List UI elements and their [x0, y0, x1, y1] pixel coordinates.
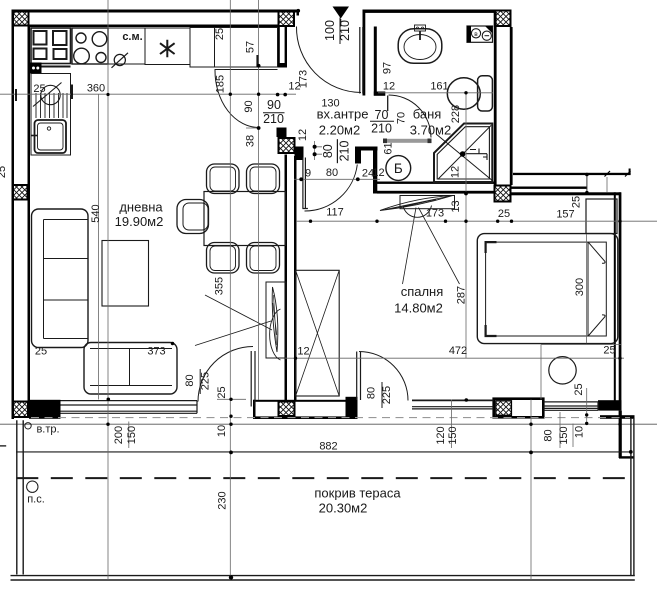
svg-text:882: 882: [319, 441, 337, 453]
svg-text:225: 225: [381, 386, 393, 404]
svg-text:80: 80: [543, 429, 555, 441]
svg-text:80: 80: [366, 387, 378, 399]
svg-text:360: 360: [87, 83, 105, 95]
svg-text:300: 300: [574, 278, 586, 296]
svg-text:150: 150: [126, 426, 138, 444]
svg-text:161: 161: [430, 81, 448, 93]
svg-text:25: 25: [0, 166, 8, 178]
svg-text:25: 25: [498, 208, 510, 220]
svg-text:200: 200: [113, 426, 125, 444]
svg-text:70: 70: [375, 108, 389, 122]
svg-text:2.20м2: 2.20м2: [319, 123, 360, 138]
svg-text:покрив тераса: покрив тераса: [314, 486, 401, 501]
svg-text:210: 210: [338, 141, 352, 162]
svg-text:в.тр.: в.тр.: [36, 424, 59, 436]
svg-text:Б: Б: [394, 161, 403, 176]
svg-text:25: 25: [214, 28, 226, 40]
svg-text:спалня: спалня: [401, 284, 444, 299]
svg-text:173: 173: [298, 70, 310, 88]
svg-text:210: 210: [338, 20, 352, 41]
svg-text:97: 97: [382, 62, 394, 74]
svg-text:540: 540: [90, 204, 102, 222]
svg-text:150: 150: [558, 426, 570, 444]
svg-text:12: 12: [297, 346, 309, 358]
svg-text:120: 120: [435, 426, 447, 444]
svg-text:25: 25: [216, 386, 228, 398]
svg-text:100: 100: [323, 20, 337, 41]
svg-text:19.90м2: 19.90м2: [115, 214, 164, 229]
svg-text:14.80м2: 14.80м2: [394, 301, 443, 316]
svg-text:185: 185: [215, 75, 227, 93]
svg-text:80: 80: [326, 167, 338, 179]
svg-text:с.м.: с.м.: [122, 31, 142, 43]
svg-text:баня: баня: [413, 107, 442, 122]
svg-text:20.30м2: 20.30м2: [319, 501, 368, 516]
svg-text:25: 25: [33, 83, 45, 95]
svg-text:228: 228: [450, 105, 462, 123]
svg-text:3.70м2: 3.70м2: [410, 123, 451, 138]
svg-text:225: 225: [200, 372, 212, 390]
svg-text:57: 57: [245, 41, 257, 53]
svg-text:п.с.: п.с.: [27, 494, 45, 506]
svg-text:38: 38: [245, 135, 257, 147]
svg-text:210: 210: [263, 112, 284, 126]
svg-text:10: 10: [574, 426, 586, 438]
svg-text:вх.антре: вх.антре: [317, 107, 369, 122]
svg-text:дневна: дневна: [119, 200, 163, 215]
svg-text:230: 230: [217, 491, 229, 509]
svg-text:90: 90: [267, 98, 281, 112]
svg-text:25: 25: [573, 383, 585, 395]
svg-text:10: 10: [216, 425, 228, 437]
svg-text:150: 150: [447, 426, 459, 444]
svg-text:173: 173: [426, 208, 444, 220]
svg-text:12: 12: [383, 81, 395, 93]
svg-text:157: 157: [556, 209, 574, 221]
svg-text:80: 80: [184, 374, 196, 386]
svg-text:472: 472: [449, 345, 467, 357]
svg-text:12: 12: [372, 167, 384, 179]
svg-text:117: 117: [326, 207, 344, 219]
svg-text:12: 12: [450, 166, 462, 178]
svg-text:25: 25: [603, 345, 615, 357]
svg-text:в: в: [474, 31, 478, 38]
svg-text:9: 9: [305, 168, 311, 180]
svg-text:355: 355: [214, 277, 226, 295]
svg-text:25: 25: [35, 346, 47, 358]
svg-text:80: 80: [321, 144, 335, 158]
svg-text:70: 70: [396, 112, 408, 124]
svg-text:373: 373: [147, 346, 165, 358]
svg-text:90: 90: [243, 100, 255, 112]
svg-text:12: 12: [297, 129, 309, 141]
svg-text:61: 61: [383, 142, 395, 154]
svg-text:13: 13: [450, 200, 462, 212]
svg-text:210: 210: [371, 122, 392, 136]
svg-text:25: 25: [571, 196, 583, 208]
svg-text:287: 287: [456, 286, 468, 304]
